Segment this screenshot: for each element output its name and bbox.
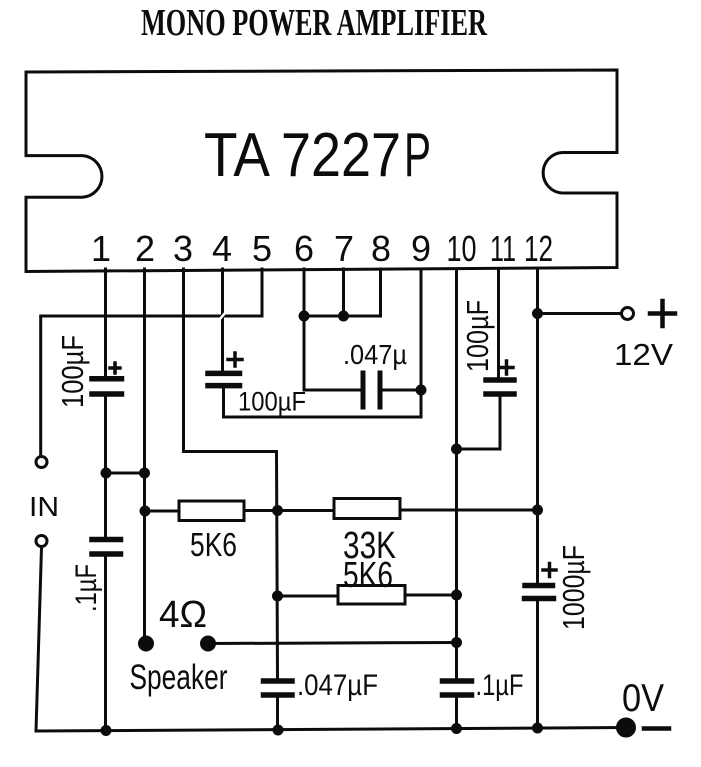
svg-text:5K6: 5K6 — [343, 554, 393, 595]
svg-text:7227: 7227 — [281, 121, 401, 190]
svg-text:100µF: 100µF — [238, 387, 306, 417]
svg-text:1: 1 — [91, 228, 111, 269]
svg-text:12V: 12V — [614, 337, 673, 372]
svg-text:6: 6 — [294, 228, 314, 269]
svg-text:1000µF: 1000µF — [556, 545, 591, 630]
svg-text:100µF: 100µF — [460, 300, 495, 372]
svg-text:10: 10 — [447, 228, 477, 269]
svg-text:4: 4 — [212, 228, 232, 269]
svg-text:0V: 0V — [622, 677, 664, 720]
svg-text:4Ω: 4Ω — [159, 594, 207, 636]
svg-text:11: 11 — [490, 228, 516, 269]
svg-text:5: 5 — [252, 228, 272, 269]
svg-text:12: 12 — [524, 228, 553, 269]
svg-text:9: 9 — [411, 228, 431, 269]
svg-text:TA: TA — [204, 121, 271, 190]
svg-text:MONO POWER AMPLIFIER: MONO POWER AMPLIFIER — [141, 2, 487, 44]
svg-text:7: 7 — [334, 228, 354, 269]
svg-text:100µF: 100µF — [55, 335, 90, 408]
svg-text:IN: IN — [29, 491, 59, 522]
svg-text:8: 8 — [371, 228, 391, 269]
svg-text:.1µF: .1µF — [70, 564, 103, 612]
svg-text:Speaker: Speaker — [130, 658, 228, 697]
svg-text:3: 3 — [173, 228, 193, 269]
svg-text:5K6: 5K6 — [190, 526, 237, 563]
svg-text:2: 2 — [135, 228, 155, 269]
svg-text:.047µ: .047µ — [343, 339, 407, 370]
svg-text:.047µF: .047µF — [297, 669, 378, 702]
svg-text:.1µF: .1µF — [476, 669, 524, 702]
svg-text:P: P — [404, 121, 431, 190]
